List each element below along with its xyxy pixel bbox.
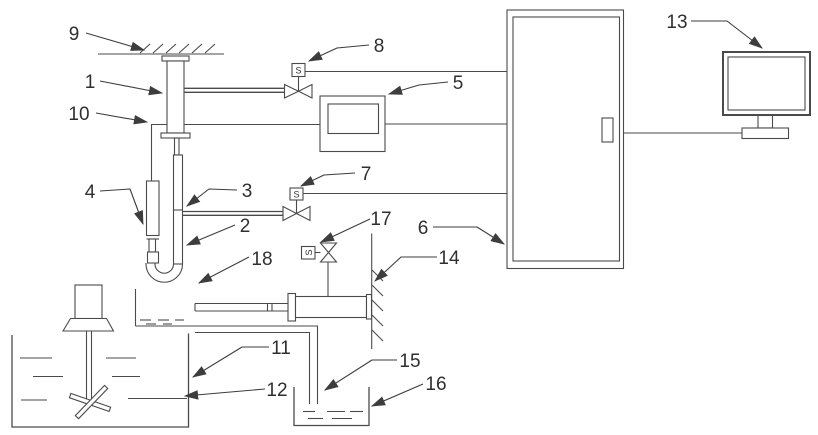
- leader-17: [321, 219, 370, 242]
- schematic-diagram: S S S: [0, 0, 818, 435]
- tank-liquid-dashes: [20, 358, 187, 400]
- valve8-solenoid-letter: S: [295, 66, 301, 76]
- leader-5: [389, 82, 448, 94]
- label-17: 17: [370, 209, 391, 230]
- monitor-screen: [728, 57, 805, 110]
- valve7-left-triangle: [283, 207, 297, 221]
- leader-18: [199, 257, 249, 283]
- label-16: 16: [425, 374, 446, 395]
- solenoid-valve-17: S: [302, 243, 337, 297]
- leader-1: [100, 81, 162, 93]
- solenoid-valve-7: S: [283, 188, 310, 221]
- cabinet-door-handle: [602, 118, 613, 142]
- cylinder-rod: [175, 138, 180, 155]
- cylinder-top-flange: [162, 56, 189, 61]
- sampling-cylinder: [161, 56, 190, 155]
- piston-end-plate: [367, 295, 372, 320]
- label-4: 4: [85, 182, 96, 203]
- sensor-probe: [147, 181, 160, 263]
- label-6: 6: [418, 218, 429, 239]
- leader-15: [325, 360, 397, 390]
- label-5: 5: [453, 73, 464, 94]
- ceiling-mount: [98, 44, 224, 54]
- leader-lines: [86, 21, 762, 406]
- valve7-right-triangle: [297, 207, 311, 221]
- label-14: 14: [438, 248, 460, 269]
- pipe-to-vent-valve: [184, 88, 285, 92]
- leader-4: [100, 189, 143, 224]
- piston-barrel: [296, 297, 367, 318]
- cylinder-bottom-flange: [161, 133, 190, 138]
- display-unit: [320, 96, 385, 152]
- leader-13: [691, 21, 762, 48]
- label-13: 13: [666, 12, 687, 33]
- collection-tank-dashes: [303, 412, 363, 419]
- collection-tank-walls: [294, 387, 369, 426]
- leader-6: [433, 227, 504, 244]
- signal-wires: [151, 72, 742, 194]
- probe-fitting: [148, 252, 159, 263]
- label-10: 10: [68, 104, 89, 125]
- label-15: 15: [399, 351, 420, 372]
- stirrer-motor-base: [63, 319, 114, 332]
- stirrer-motor: [75, 285, 102, 319]
- collection-tank: [294, 387, 369, 426]
- label-7: 7: [361, 164, 372, 185]
- monitor-neck: [758, 116, 773, 129]
- stirred-tank: [12, 285, 189, 427]
- tank-walls: [12, 334, 189, 428]
- leader-16: [372, 384, 423, 406]
- leader-8: [309, 45, 369, 61]
- valve7-solenoid-letter: S: [293, 190, 299, 200]
- computer-monitor: [723, 52, 810, 139]
- label-1: 1: [85, 72, 96, 93]
- leader-2: [187, 225, 235, 245]
- piston-flange: [288, 294, 296, 322]
- leader-3: [187, 189, 237, 206]
- label-2: 2: [240, 216, 251, 237]
- diagram-canvas: S S S: [0, 0, 818, 435]
- control-cabinet: [507, 10, 624, 269]
- stirrer: [63, 285, 114, 419]
- label-3: 3: [242, 181, 253, 202]
- monitor-base: [742, 128, 789, 139]
- leader-10: [96, 113, 147, 122]
- leader-7: [301, 173, 355, 186]
- u-bend-outer: [146, 263, 183, 282]
- sample-pipe: [183, 212, 284, 216]
- label-11: 11: [271, 338, 291, 359]
- valve17-solenoid-letter: S: [304, 249, 314, 255]
- valve17-bottom-triangle: [321, 253, 337, 263]
- probe-body: [147, 181, 160, 236]
- label-12: 12: [266, 380, 287, 401]
- tray-liquid-dashes: [140, 320, 184, 324]
- valve17-top-triangle: [321, 243, 337, 253]
- wall-hatch-marks: [372, 270, 383, 341]
- label-9: 9: [69, 24, 80, 45]
- valve8-left-triangle: [285, 85, 299, 99]
- u-bend-inner: [155, 263, 174, 273]
- probe-tip: [149, 239, 156, 252]
- display-screen: [328, 104, 379, 134]
- leader-12: [185, 389, 265, 396]
- label-8: 8: [374, 36, 385, 57]
- piston-pump: [195, 294, 372, 322]
- wall-mount: [372, 234, 383, 350]
- leader-14: [375, 257, 437, 281]
- cylinder-body: [167, 61, 184, 133]
- valve8-right-triangle: [299, 85, 313, 99]
- leader-9: [86, 33, 144, 50]
- ceiling-hatch-marks: [140, 44, 215, 53]
- label-18: 18: [251, 249, 272, 270]
- solenoid-valve-8: S: [285, 64, 313, 99]
- leader-11: [193, 347, 269, 377]
